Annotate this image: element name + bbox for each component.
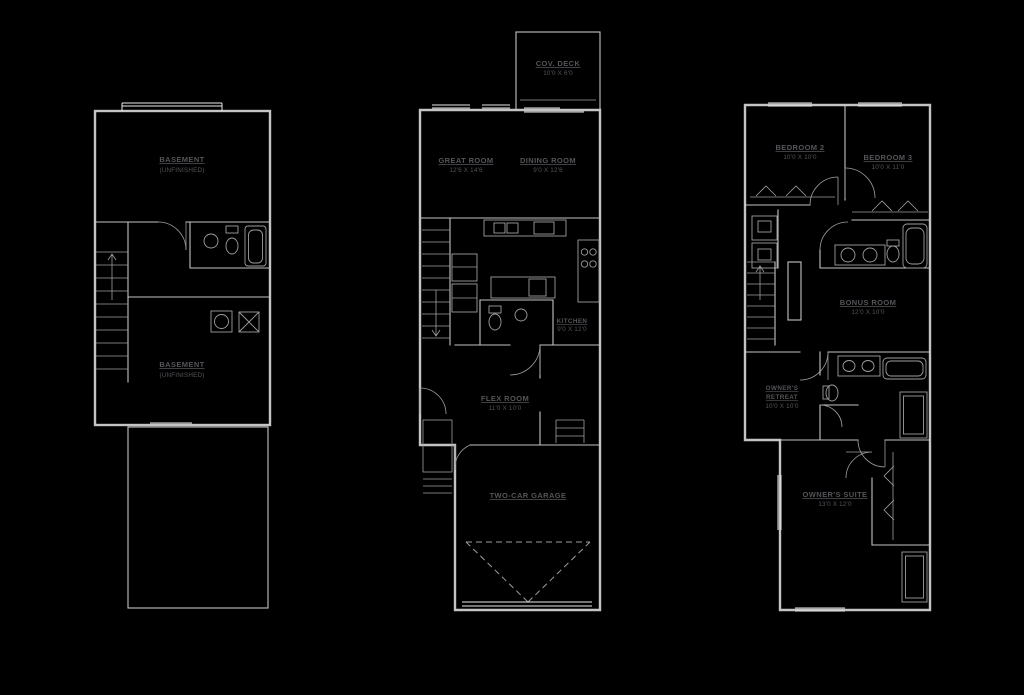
dining-room-label: DINING ROOM [520,156,576,165]
flex-room-label: FLEX ROOM [481,394,529,403]
washer-icon [752,216,777,240]
main-exterior-wall [420,110,600,610]
bonus-room-label: BONUS ROOM [840,298,897,307]
owners-suite-label: OWNER'S SUITE [803,490,868,499]
basement-bath-walls [190,222,270,268]
kitchen-island [491,277,555,298]
owners-retreat-label: OWNER'S [766,385,799,392]
floor-plan-sheet: BASEMENT (UNFINISHED) BASEMENT (UNFINISH… [0,0,1024,695]
bonus-room-dims: 12'0 X 10'0 [851,309,885,316]
burner-icon [581,261,587,267]
plan-upper-level: BEDROOM 2 10'0 X 10'0 BEDROOM 3 10'0 X 1… [745,103,930,611]
basement-upper-room-dims: (UNFINISHED) [159,167,204,174]
basement-mechanical [211,311,259,332]
kitchen-label: KITCHEN [557,318,588,325]
flex-room-dims: 11'0 X 10'0 [489,405,522,412]
great-room-dims: 12'6 X 14'6 [449,167,483,174]
owners-suite-dims: 13'0 X 12'0 [818,501,852,508]
deck-dims: 10'0 X 6'0 [543,70,573,77]
garage-door [462,602,592,606]
burner-icon [590,249,596,255]
basement-bath-fixtures [204,226,266,266]
garage-markings [462,542,592,606]
owners-retreat-label2: RETREAT [766,394,798,401]
sink-icon [515,309,527,321]
front-entry-door [420,388,446,414]
dining-room-dims: 9'0 X 12'6 [533,167,563,174]
bedroom3-closet [852,201,930,220]
bedroom2-closet [745,177,838,205]
burner-icon [590,261,596,267]
burner-icon [581,249,587,255]
retreat-door [800,352,828,380]
garage-label: TWO-CAR GARAGE [490,491,567,500]
deck-label: COV. DECK [536,59,581,68]
bedroom3-door [845,168,875,198]
bedroom2-label: BEDROOM 2 [775,143,824,152]
laundry-closet [752,210,778,268]
toilet-icon [226,238,238,254]
plan-main-level: COV. DECK 10'0 X 6'0 [420,32,600,610]
sink-basin-icon [494,223,505,233]
toilet-icon [489,314,501,330]
owners-bath [820,352,927,440]
main-top-windows [432,105,510,108]
linen-chase [788,262,801,320]
dishwasher-icon [534,222,554,234]
owners-retreat-dims: 10'0 X 10'0 [765,403,799,410]
sink-icon [862,361,874,372]
toilet-icon [887,246,899,262]
basement-upper-room-label: BASEMENT [159,155,204,164]
sink-icon [863,248,877,262]
basement-lower-room-dims: (UNFINISHED) [159,372,204,379]
vanity-counter [835,245,885,265]
hall-door [510,345,540,375]
sink-basin-icon [507,223,518,233]
basement-hall-door [158,222,186,250]
bedroom3-dims: 10'0 X 11'0 [872,164,905,171]
dryer-icon [752,243,777,268]
kitchen-fixtures [452,220,599,312]
bedroom2-dims: 10'0 X 10'0 [783,154,817,161]
sink-icon [843,361,855,372]
plan-basement: BASEMENT (UNFINISHED) BASEMENT (UNFINISH… [95,103,270,608]
bedroom3-label: BEDROOM 3 [863,153,912,162]
upper-exterior-wall [745,105,930,610]
front-porch [423,420,452,493]
floor-plan-drawing: BASEMENT (UNFINISHED) BASEMENT (UNFINISH… [0,0,1024,695]
main-stairs [422,230,450,338]
pantry-cabinet [452,254,477,281]
sink-icon [204,234,218,248]
basement-lower-room-label: BASEMENT [159,360,204,369]
basement-patio-outline [128,427,268,608]
powder-room-fixtures [489,306,527,330]
sink-icon [841,248,855,262]
shower-icon [900,392,927,438]
great-room-label: GREAT ROOM [438,156,493,165]
range-counter [578,240,599,302]
basement-stairs [96,252,128,369]
upper-stairs [747,262,801,345]
powder-room-walls [480,300,553,345]
hall-bath [820,222,930,268]
kitchen-dims: 9'0 X 12'0 [557,326,587,333]
